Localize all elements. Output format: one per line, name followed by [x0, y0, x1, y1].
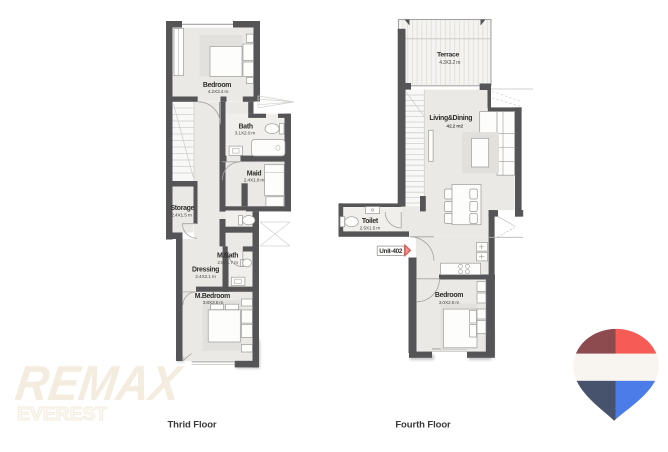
- svg-text:4.3X3.2 m: 4.3X3.2 m: [439, 60, 460, 66]
- svg-text:3.1X2.0 m: 3.1X2.0 m: [235, 131, 256, 137]
- svg-text:2.9X1.7 m: 2.9X1.7 m: [217, 260, 238, 266]
- svg-text:Storage: Storage: [171, 205, 195, 212]
- svg-text:2.4X2.1 m: 2.4X2.1 m: [195, 274, 216, 280]
- svg-text:M.Bedroom: M.Bedroom: [195, 293, 230, 300]
- svg-text:Thrid Floor: Thrid Floor: [167, 420, 216, 431]
- svg-text:3.0X2.8 m: 3.0X2.8 m: [439, 300, 460, 306]
- svg-text:REMAX: REMAX: [12, 356, 187, 411]
- svg-text:Unit-402: Unit-402: [379, 248, 403, 255]
- svg-text:2.4X1.8 m: 2.4X1.8 m: [244, 178, 265, 184]
- svg-text:Bath: Bath: [239, 124, 253, 131]
- svg-text:Bedroom: Bedroom: [203, 82, 231, 89]
- svg-text:Maid: Maid: [247, 170, 262, 177]
- svg-text:42.2 m2: 42.2 m2: [446, 123, 463, 129]
- svg-text:Terrace: Terrace: [437, 51, 459, 58]
- svg-text:Toilet: Toilet: [362, 218, 379, 225]
- svg-text:M.Bath: M.Bath: [217, 253, 238, 260]
- svg-text:3.8X3.6 m: 3.8X3.6 m: [203, 300, 224, 306]
- svg-text:4.2X3.4 m: 4.2X3.4 m: [208, 89, 229, 95]
- svg-text:2.5X1.5 m: 2.5X1.5 m: [360, 225, 381, 231]
- svg-text:Living&Dining: Living&Dining: [429, 115, 472, 122]
- svg-text:2.4X1.5 m: 2.4X1.5 m: [171, 212, 192, 218]
- svg-text:Fourth Floor: Fourth Floor: [395, 420, 451, 431]
- svg-text:Bedroom: Bedroom: [435, 292, 463, 299]
- svg-text:EVEREST: EVEREST: [17, 404, 107, 424]
- svg-text:Dressing: Dressing: [192, 267, 219, 274]
